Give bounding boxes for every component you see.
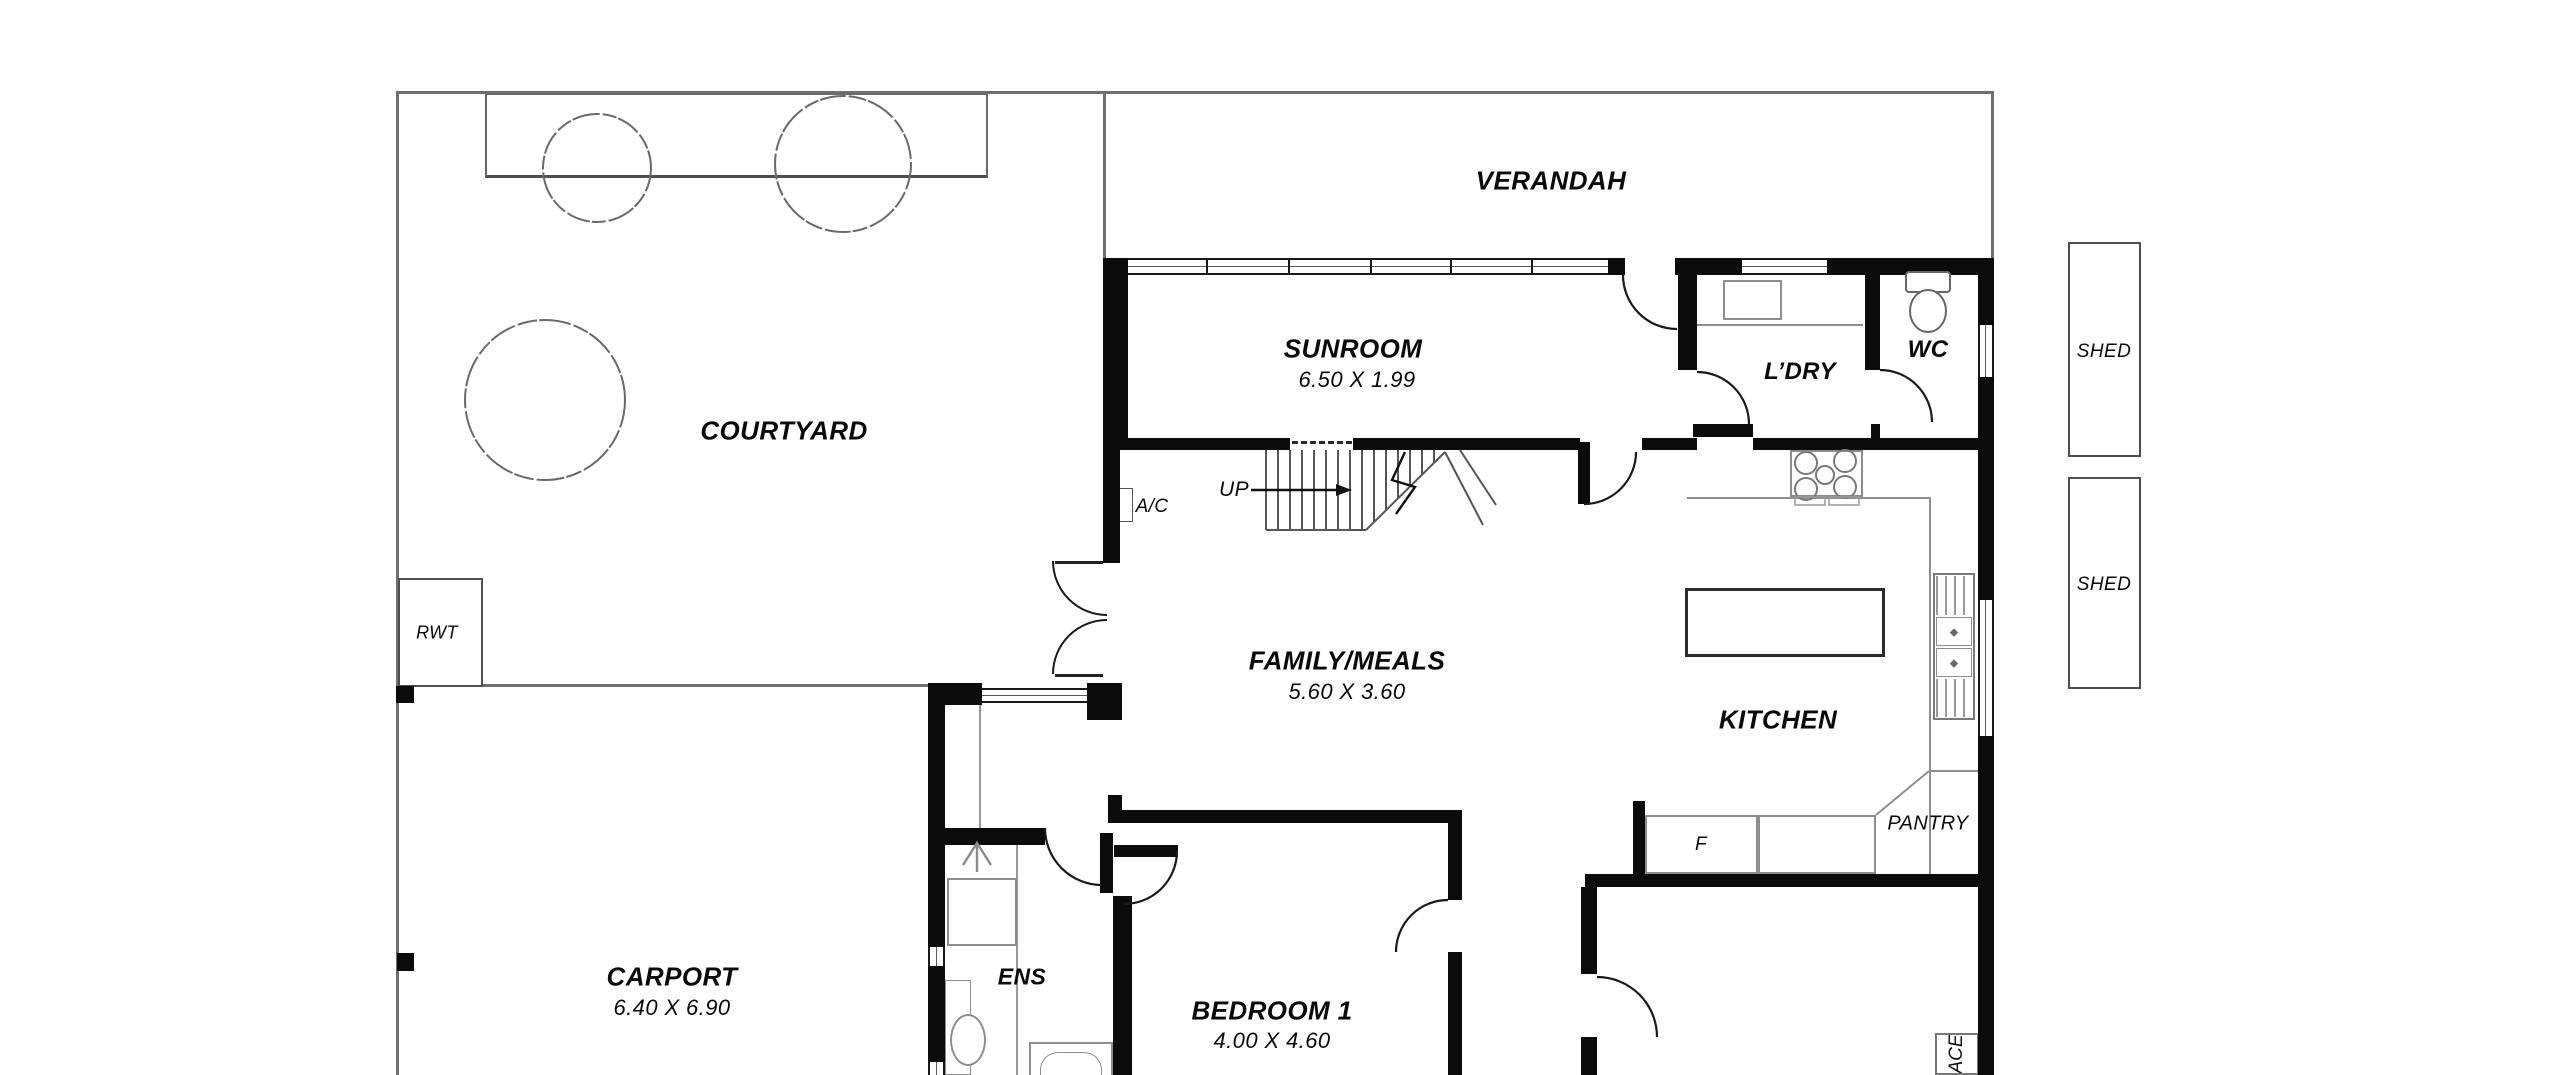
- plan-linework: [0, 0, 2560, 1075]
- pantry-label: PANTRY: [1887, 813, 1968, 836]
- shed-top-label: SHED: [2077, 341, 2131, 363]
- french-door-arc-upper: [1053, 561, 1107, 615]
- sunroom-door-arc: [1623, 275, 1677, 329]
- laundry-label: L’DRY: [1764, 358, 1836, 386]
- stair-break-line: [1392, 452, 1415, 514]
- kitchen-label: KITCHEN: [1719, 705, 1837, 736]
- family-label: FAMILY/MEALS: [1249, 646, 1445, 677]
- floor-plan: ◆ ◆ ACE: [0, 0, 2560, 1075]
- up-label: UP: [1219, 478, 1249, 502]
- ens-door-arc: [1045, 828, 1102, 885]
- wc-door-arc: [1880, 370, 1932, 422]
- bedroom1-east-door-arc: [1396, 900, 1448, 952]
- tree-icon: [543, 114, 651, 222]
- verandah-label: VERANDAH: [1476, 166, 1627, 197]
- carport-dims: 6.40 X 6.90: [614, 995, 731, 1021]
- ac-label: A/C: [1136, 496, 1169, 518]
- fridge-label: F: [1695, 834, 1707, 856]
- wc-label: WC: [1908, 336, 1949, 364]
- courtyard-label: COURTYARD: [700, 416, 867, 447]
- kitchen-door-arc: [1584, 452, 1636, 504]
- rear-room-door-arc: [1597, 977, 1657, 1037]
- tree-icon: [465, 320, 625, 480]
- tree-icon: [775, 96, 911, 232]
- pantry-diagonal-line: [1876, 771, 1929, 815]
- laundry-door-arc: [1697, 372, 1749, 424]
- bedroom1-door-arc: [1124, 851, 1177, 904]
- french-door-arc-lower: [1053, 620, 1107, 674]
- toilet-icon: [1906, 272, 1950, 332]
- rwt-label: RWT: [416, 623, 458, 644]
- ens-label: ENS: [998, 964, 1047, 991]
- family-dims: 5.60 X 3.60: [1289, 679, 1406, 705]
- sunroom-label: SUNROOM: [1284, 334, 1423, 365]
- cooktop-burners: [1795, 450, 1856, 500]
- sunroom-dims: 6.50 X 1.99: [1299, 367, 1416, 393]
- bedroom1-label: BEDROOM 1: [1191, 996, 1352, 1027]
- bedroom1-dims: 4.00 X 4.60: [1214, 1028, 1331, 1054]
- carport-label: CARPORT: [607, 962, 738, 993]
- shed-bottom-label: SHED: [2077, 574, 2131, 596]
